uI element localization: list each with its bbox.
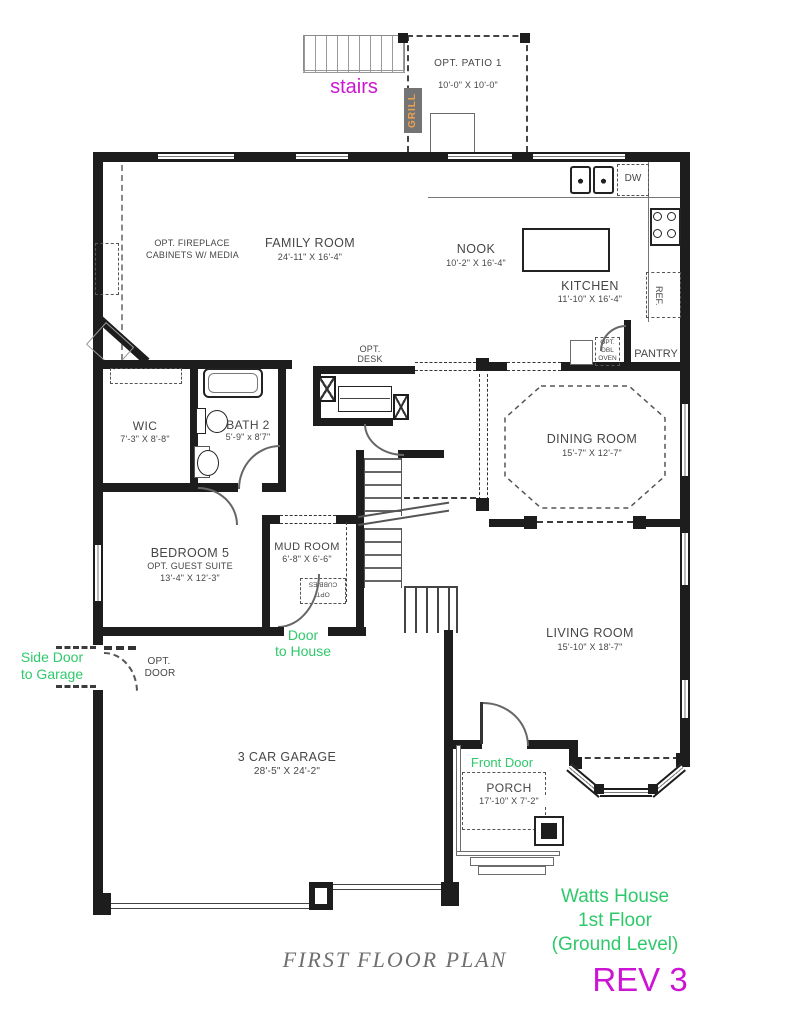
window <box>296 152 348 161</box>
wall-stair-left <box>356 450 364 635</box>
opt-desk-label-2: DESK <box>340 354 400 364</box>
grill-box: GRILL <box>404 88 422 133</box>
cabinet <box>570 340 593 365</box>
patio-corner-post <box>398 33 408 43</box>
cased-opening <box>507 362 561 371</box>
cubbies-dash-line <box>346 522 347 602</box>
patio-label: OPT. PATIO 1 <box>417 58 519 69</box>
porch-step <box>478 866 546 875</box>
rear-landing <box>430 113 475 154</box>
bedroom5-sub: OPT. GUEST SUITE <box>128 561 252 571</box>
bay-header-dash <box>575 757 679 759</box>
opt-desk-label-1: OPT. <box>340 344 400 354</box>
house-title-2: 1st Floor <box>540 910 690 931</box>
kitchen-sink-basin <box>570 166 591 194</box>
header-dash <box>404 497 476 499</box>
porch-column-core <box>541 823 557 839</box>
side-door-annotation-1: Side Door <box>12 650 92 666</box>
porch-label: PORCH <box>478 782 540 795</box>
post <box>633 516 646 529</box>
stair-door-arc <box>364 424 404 456</box>
side-door-opening <box>93 645 103 690</box>
kitchen-dims: 11'-10" X 16'-4" <box>544 294 636 304</box>
wall-dining-bottom <box>646 519 682 527</box>
post <box>476 358 489 371</box>
stair-railing <box>404 586 458 633</box>
porch-step <box>470 857 554 866</box>
opt-door-leaf <box>104 646 136 650</box>
garage-door-opening <box>111 903 309 909</box>
window <box>533 152 625 161</box>
pantry-door-arc <box>600 325 626 351</box>
cased-opening <box>415 362 476 371</box>
bath2-label: BATH 2 <box>212 419 284 432</box>
desk-line <box>340 398 390 399</box>
garage-label: 3 CAR GARAGE <box>225 750 349 764</box>
window <box>93 545 103 601</box>
oven-label-3: OVEN <box>595 355 620 362</box>
garage-corner <box>93 893 111 915</box>
colonnade-dash <box>479 374 488 500</box>
wall-mudroom-left <box>262 515 270 635</box>
bath-sink <box>197 450 219 476</box>
dining-label: DINING ROOM <box>532 432 652 446</box>
wic-door-arc <box>198 487 238 525</box>
wall-stair-top <box>398 450 444 458</box>
window <box>680 404 690 476</box>
kitchen-island <box>522 228 610 272</box>
exterior-stairs-hatch <box>303 35 405 73</box>
living-label: LIVING ROOM <box>530 626 650 640</box>
fireplace-label-2: CABINETS W/ MEDIA <box>120 250 265 260</box>
dining-dims: 15'-7" X 12'-7" <box>532 448 652 458</box>
column-post <box>393 394 409 420</box>
stairs-up-run <box>364 458 402 516</box>
patio-corner-post <box>520 33 530 43</box>
front-door-arc <box>483 702 529 746</box>
toilet-tank <box>196 408 206 434</box>
bath2-dims: 5'-9" x 8'7" <box>210 432 286 442</box>
plan-title: FIRST FLOOR PLAN <box>280 948 510 973</box>
garage-door-opening <box>333 884 441 890</box>
porch-dims: 17'-10" X 7'-2" <box>470 796 548 806</box>
stairs-annotation: stairs <box>300 76 408 98</box>
family-room-dims: 24'-11" X 16'-4" <box>250 252 370 262</box>
post <box>476 498 489 511</box>
burner <box>667 229 676 238</box>
porch-wall-left <box>456 745 461 855</box>
kitchen-sink-basin <box>593 166 614 194</box>
opt-door-label-1: OPT. <box>138 656 180 667</box>
post <box>524 516 537 529</box>
wic-label: WIC <box>105 420 185 433</box>
burner <box>653 229 662 238</box>
fireplace-option-line <box>121 165 123 360</box>
patio-dims: 10'-0" X 10'-0" <box>417 80 519 90</box>
bedroom5-label: BEDROOM 5 <box>130 546 250 560</box>
wall-garage-right <box>444 748 453 884</box>
bedroom5-dims: 13'-4" X 12'-3" <box>133 573 247 583</box>
nook-label: NOOK <box>445 242 507 256</box>
side-door-annotation-2: to Garage <box>10 667 94 683</box>
family-room-label: FAMILY ROOM <box>250 236 370 250</box>
wall-segment <box>489 362 507 371</box>
door-to-house-annotation-1: Door <box>272 628 334 644</box>
refrigerator-label: REF. <box>654 276 664 316</box>
stairs-down-run <box>364 528 402 588</box>
window <box>680 533 690 585</box>
nook-dims: 10'-2" X 16'-4" <box>430 258 522 268</box>
fireplace-label-1: OPT. FIREPLACE <box>132 238 252 248</box>
window <box>448 152 512 161</box>
dining-ceiling-octagon <box>503 384 667 510</box>
mudroom-dims: 6'-8" X 6'-6" <box>272 554 342 564</box>
floor-plan: stairs OPT. PATIO 1 10'-0" X 10'-0" GRIL… <box>0 0 791 1024</box>
dining-opening-dash <box>537 521 633 523</box>
window <box>158 152 234 161</box>
revision-label: REV 3 <box>578 962 702 999</box>
fireplace-cabinet-dashed <box>95 243 119 295</box>
kitchen-label: KITCHEN <box>548 279 632 293</box>
pilaster-inset <box>315 888 327 904</box>
bay-window <box>600 788 652 797</box>
desk-wall-top <box>313 366 415 374</box>
bay-post <box>648 784 658 794</box>
garage-pilaster <box>441 882 459 906</box>
burner <box>667 212 676 221</box>
house-title-3: (Ground Level) <box>532 934 698 955</box>
closet-shelf <box>110 368 182 384</box>
window <box>680 680 690 718</box>
living-dims: 15'-10" X 18'-7" <box>535 642 645 652</box>
dishwasher-label: DW <box>617 173 649 184</box>
bath-door-arc <box>238 445 280 489</box>
mudroom-door-arc <box>278 574 320 628</box>
garage-dims: 28'-5" X 24'-2" <box>228 766 346 777</box>
wall-garage-right <box>444 630 453 748</box>
leader-dash <box>56 685 96 688</box>
column-post <box>318 376 336 402</box>
front-door-annotation: Front Door <box>466 756 538 771</box>
desk-surface <box>338 386 392 412</box>
bathtub-inner <box>208 373 258 393</box>
house-title-1: Watts House <box>540 886 690 907</box>
door-to-house-annotation-2: to House <box>266 644 340 660</box>
pantry-label: PANTRY <box>630 348 682 360</box>
opt-door-arc <box>104 652 138 692</box>
cased-opening <box>280 515 336 524</box>
mudroom-label: MUD ROOM <box>268 541 346 553</box>
wall-front <box>444 740 482 749</box>
bay-post <box>594 784 604 794</box>
porch-wall-bottom <box>456 851 560 856</box>
wic-dims: 7'-3" X 8'-8" <box>103 434 187 444</box>
burner <box>653 212 662 221</box>
opt-door-label-2: DOOR <box>136 668 184 679</box>
